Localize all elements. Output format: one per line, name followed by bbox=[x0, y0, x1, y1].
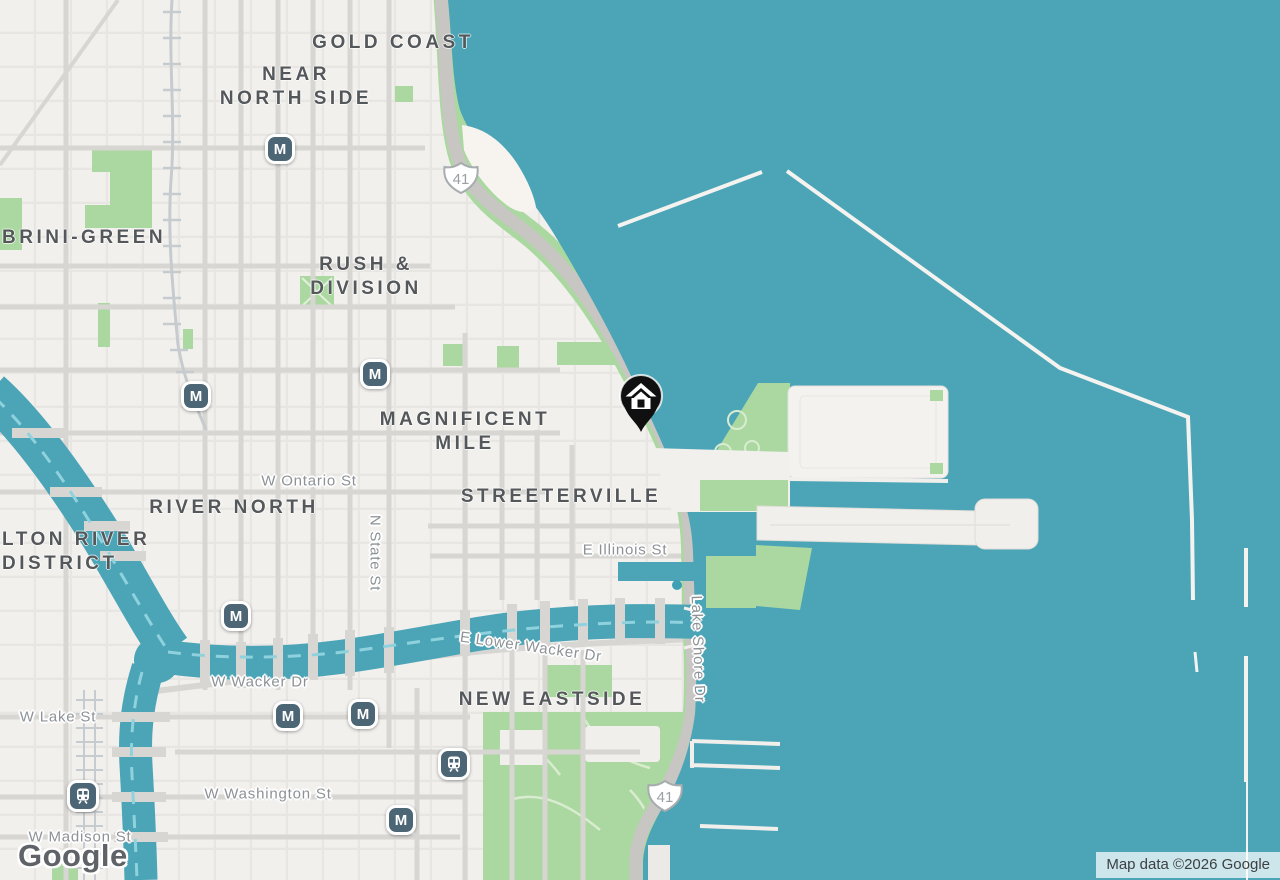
street-label-w-ontario-st: W Ontario St bbox=[261, 473, 356, 490]
neighborhood-label-magnificent-mile: MAGNIFICENT MILE bbox=[380, 408, 550, 456]
neighborhood-label-river-north: RIVER NORTH bbox=[149, 496, 318, 520]
google-logo[interactable]: Google bbox=[18, 838, 128, 874]
metro-station-icon[interactable]: M bbox=[360, 359, 390, 389]
metro-station-icon[interactable]: M bbox=[386, 805, 416, 835]
neighborhood-label-fulton-river-district: LTON RIVER DISTRICT bbox=[2, 528, 150, 576]
neighborhood-label-rush-and-division: RUSH & DIVISION bbox=[310, 253, 421, 301]
home-location-pin[interactable] bbox=[615, 372, 669, 434]
base-map-canvas[interactable] bbox=[0, 0, 1280, 880]
train-station-icon[interactable] bbox=[438, 748, 470, 780]
svg-text:41: 41 bbox=[453, 171, 470, 188]
metro-station-icon[interactable]: M bbox=[265, 134, 295, 164]
home-icon bbox=[620, 375, 662, 432]
street-label-e-illinois-st: E Illinois St bbox=[583, 542, 668, 559]
metro-station-icon[interactable]: M bbox=[348, 699, 378, 729]
street-label-w-wacker-dr: W Wacker Dr bbox=[211, 674, 308, 691]
train-glyph bbox=[445, 755, 463, 773]
neighborhood-label-gold-coast: GOLD COAST bbox=[312, 31, 474, 55]
neighborhood-label-streeterville: STREETERVILLE bbox=[461, 485, 661, 509]
map-viewport[interactable]: GOLD COAST NEAR NORTH SIDE BRINI-GREEN R… bbox=[0, 0, 1280, 880]
us-41-route-shield: 41 bbox=[645, 778, 685, 814]
neighborhood-label-cabrini-green: BRINI-GREEN bbox=[2, 226, 166, 250]
train-station-icon[interactable] bbox=[67, 780, 99, 812]
metro-station-icon[interactable]: M bbox=[221, 601, 251, 631]
train-glyph bbox=[74, 787, 92, 805]
neighborhood-label-new-eastside: NEW EASTSIDE bbox=[459, 688, 646, 712]
street-label-w-washington-st: W Washington St bbox=[204, 786, 331, 803]
us-41-route-shield: 41 bbox=[441, 160, 481, 196]
metro-station-icon[interactable]: M bbox=[273, 701, 303, 731]
street-label-w-lake-st: W Lake St bbox=[20, 709, 96, 726]
street-label-n-state-st: N State St bbox=[367, 515, 384, 591]
map-attribution: Map data ©2026 Google bbox=[1096, 852, 1280, 878]
svg-text:41: 41 bbox=[657, 789, 674, 806]
neighborhood-label-near-north-side: NEAR NORTH SIDE bbox=[220, 63, 372, 111]
metro-station-icon[interactable]: M bbox=[181, 381, 211, 411]
